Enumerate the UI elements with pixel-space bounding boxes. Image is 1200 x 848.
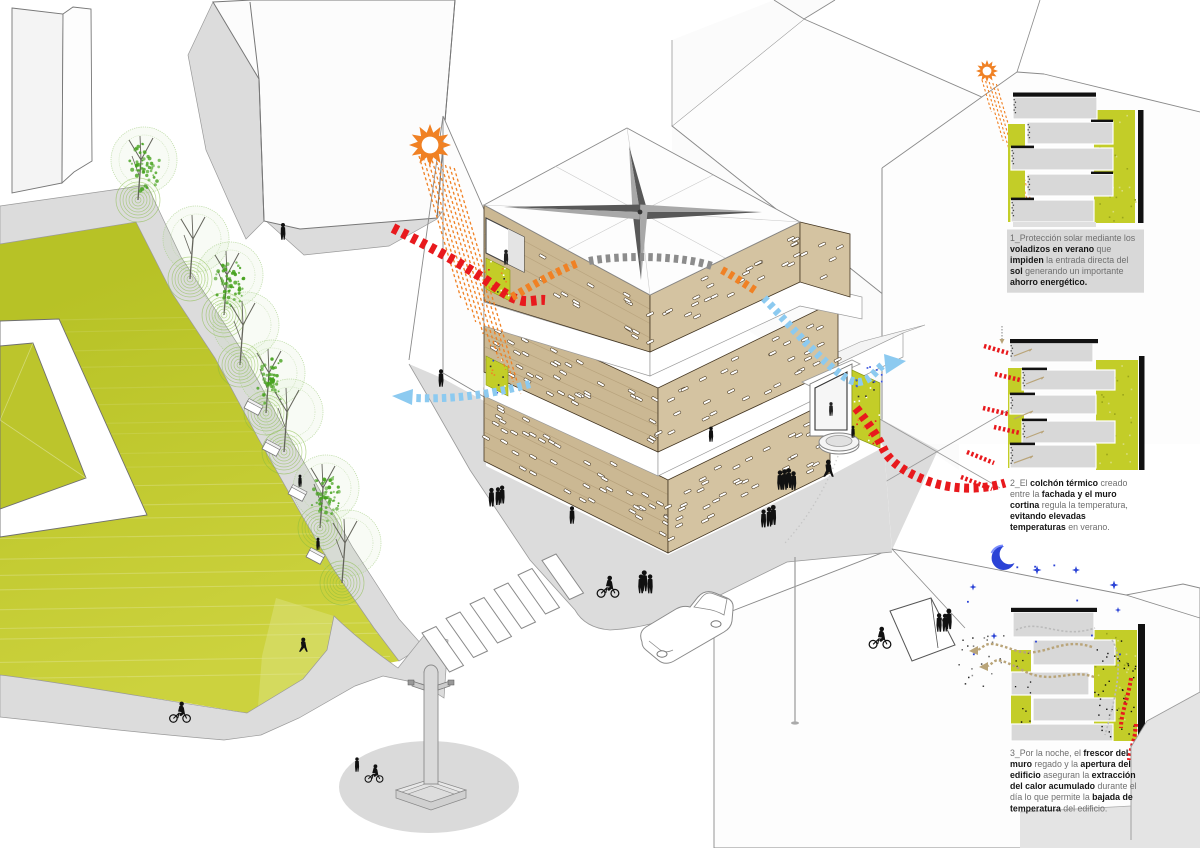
svg-text:ahorro energético.: ahorro energético. xyxy=(1010,277,1087,287)
svg-text:evitando elevadas: evitando elevadas xyxy=(1010,511,1086,521)
svg-text:entre la fachada y el muro: entre la fachada y el muro xyxy=(1010,489,1117,499)
svg-text:2_El colchón térmico creado: 2_El colchón térmico creado xyxy=(1010,478,1127,488)
svg-text:día lo que permite la bajada d: día lo que permite la bajada de xyxy=(1010,792,1133,802)
svg-text:3_Por la noche, el frescor del: 3_Por la noche, el frescor del xyxy=(1010,748,1128,758)
svg-text:del calor acumulado durante el: del calor acumulado durante el xyxy=(1010,781,1137,791)
svg-text:voladizos en verano que: voladizos en verano que xyxy=(1010,244,1111,254)
svg-text:sol generando un importante: sol generando un importante xyxy=(1010,266,1124,276)
svg-text:temperatura del edificio.: temperatura del edificio. xyxy=(1010,803,1107,813)
svg-text:temperaturas en verano.: temperaturas en verano. xyxy=(1010,522,1110,532)
svg-text:edificio aseguran la extracció: edificio aseguran la extracción xyxy=(1010,770,1136,780)
svg-text:cortina regula la temperatura,: cortina regula la temperatura, xyxy=(1010,500,1128,510)
svg-text:muro regado y la apertura del: muro regado y la apertura del xyxy=(1010,759,1131,769)
svg-text:1_Protección solar mediante lo: 1_Protección solar mediante los xyxy=(1010,233,1136,243)
svg-text:impiden la entrada directa del: impiden la entrada directa del xyxy=(1010,255,1128,265)
